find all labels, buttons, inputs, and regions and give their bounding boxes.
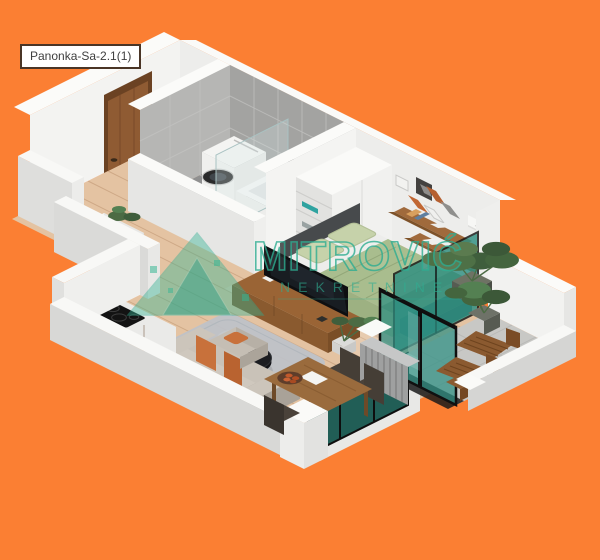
watermark-brand: MITROVIĆ (253, 233, 463, 279)
floorplan-render: MITROVIĆ NEKRETNINE (0, 0, 600, 560)
logo-pixel (150, 266, 157, 273)
plan-label: Panonka-Sa-2.1(1) (20, 44, 141, 69)
floorplan-scene: MITROVIĆ NEKRETNINE Panonka-Sa-2.1(1) (0, 0, 600, 560)
watermark-subtitle: NEKRETNINE (280, 279, 450, 295)
